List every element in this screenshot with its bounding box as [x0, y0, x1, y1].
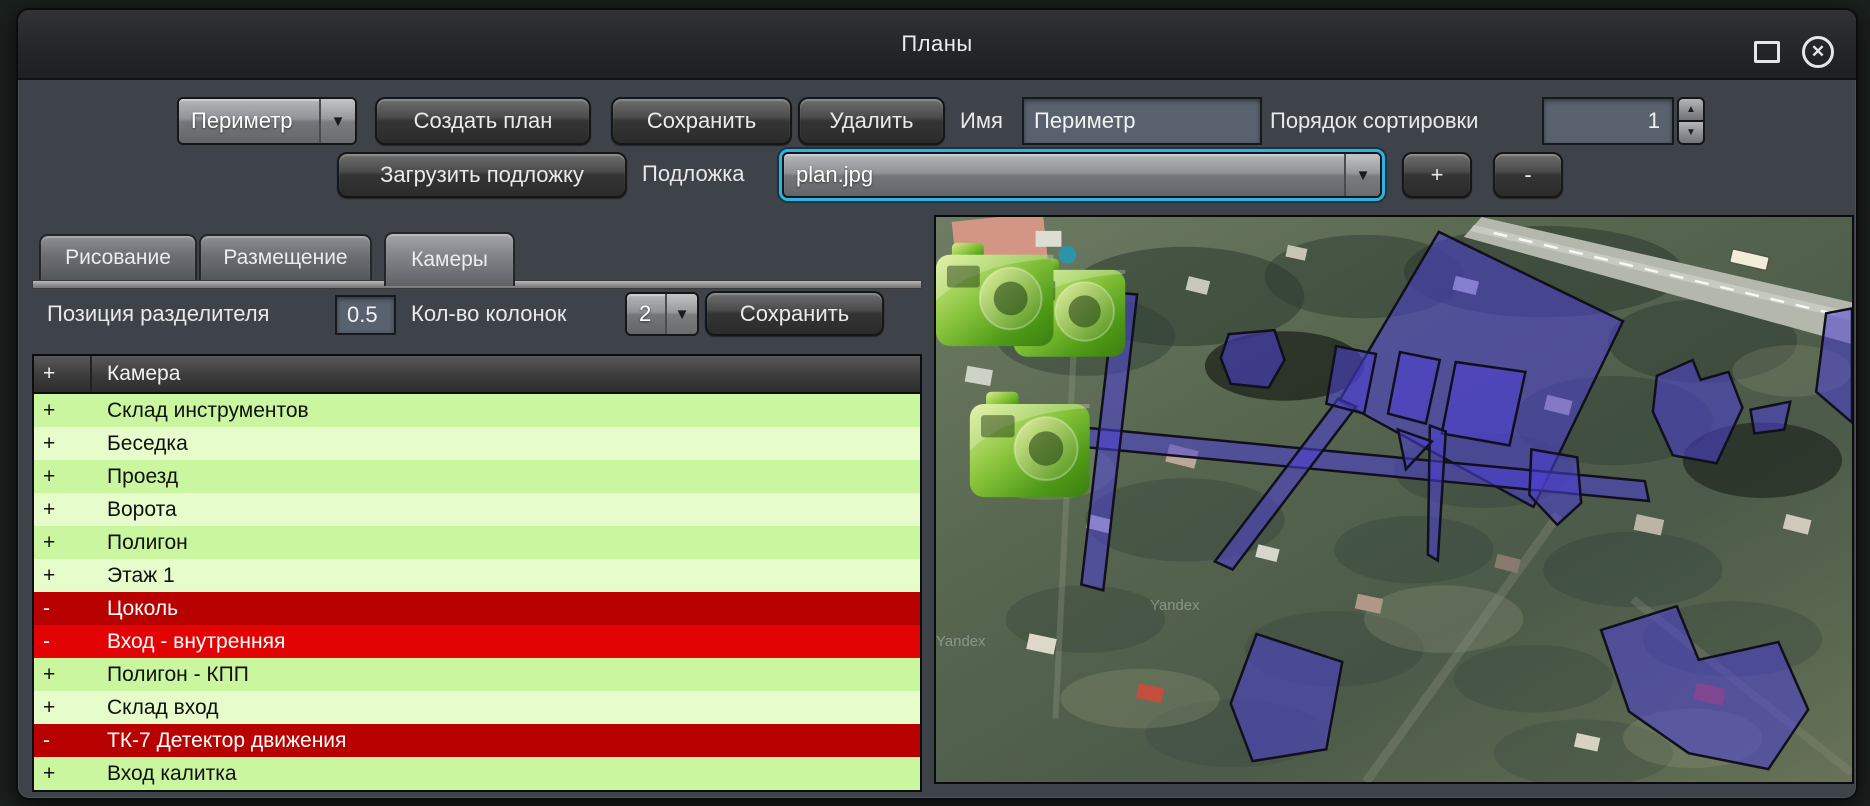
camera-row-name[interactable]: Склад инструментов	[92, 394, 920, 427]
camera-icon[interactable]	[936, 243, 1053, 346]
camera-row-mark[interactable]: +	[34, 691, 92, 724]
camera-row-mark[interactable]: +	[34, 493, 92, 526]
columns-count-label: Кол-во колонок	[411, 293, 566, 335]
columns-count-select[interactable]: 2 ▼	[625, 292, 699, 336]
camera-table-row[interactable]: +Склад инструментов	[34, 394, 920, 427]
remove-underlay-button[interactable]: -	[1493, 152, 1563, 198]
camera-row-mark[interactable]: -	[34, 625, 92, 658]
camera-row-mark[interactable]: -	[34, 724, 92, 757]
name-input[interactable]: Периметр	[1022, 97, 1262, 145]
camera-row-name[interactable]: Полигон - КПП	[92, 658, 920, 691]
save-plan-button[interactable]: Сохранить	[611, 97, 792, 145]
map-watermark: Yandex	[936, 634, 986, 650]
camera-row-name[interactable]: Беседка	[92, 427, 920, 460]
camera-row-mark[interactable]: +	[34, 526, 92, 559]
titlebar: Планы ✕	[18, 10, 1856, 80]
camera-row-name[interactable]: Склад вход	[92, 691, 920, 724]
delete-plan-button[interactable]: Удалить	[798, 97, 945, 145]
tab-drawing[interactable]: Рисование	[39, 234, 197, 280]
create-plan-button[interactable]: Создать план	[375, 97, 591, 145]
zone-polygon-area-pentagon[interactable]	[1529, 449, 1581, 524]
camera-table-header: + Камера	[34, 356, 920, 394]
camera-table-row[interactable]: -ТК-7 Детектор движения	[34, 724, 920, 757]
spin-down-icon[interactable]: ▼	[1677, 121, 1705, 145]
camera-row-name[interactable]: Цоколь	[92, 592, 920, 625]
camera-table-row[interactable]: +Проезд	[34, 460, 920, 493]
camera-row-mark[interactable]: +	[34, 757, 92, 790]
spin-up-icon[interactable]: ▲	[1677, 97, 1705, 121]
camera-table-row[interactable]: -Цоколь	[34, 592, 920, 625]
camera-row-name[interactable]: Вход калитка	[92, 757, 920, 790]
underlay-select[interactable]: plan.jpg ▼	[782, 152, 1382, 198]
sort-order-stepper[interactable]: 1 ▲ ▼	[1542, 97, 1705, 145]
camera-row-name[interactable]: Вход - внутренняя	[92, 625, 920, 658]
plans-window: Планы ✕ Периметр ▼ Создать план Сохранит…	[16, 8, 1858, 800]
camera-table-row[interactable]: -Вход - внутренняя	[34, 625, 920, 658]
column-header-camera[interactable]: Камера	[92, 356, 920, 392]
maximize-icon[interactable]	[1754, 41, 1780, 63]
plan-select-value: Периметр	[179, 108, 319, 134]
camera-row-name[interactable]: ТК-7 Детектор движения	[92, 724, 920, 757]
save-cameras-button[interactable]: Сохранить	[705, 291, 884, 336]
tab-placement[interactable]: Размещение	[199, 234, 372, 280]
plan-map[interactable]: YandexYandex	[934, 215, 1854, 784]
sort-order-label: Порядок сортировки	[1270, 97, 1478, 145]
camera-table: + Камера +Склад инструментов+Беседка+Про…	[32, 354, 922, 792]
add-underlay-button[interactable]: +	[1402, 152, 1472, 198]
zone-polygon-area-left[interactable]	[1221, 330, 1285, 388]
camera-row-mark[interactable]: -	[34, 592, 92, 625]
splitter-position-label: Позиция разделителя	[47, 293, 269, 335]
camera-row-mark[interactable]: +	[34, 460, 92, 493]
tab-cameras[interactable]: Камеры	[384, 232, 515, 286]
camera-table-body: +Склад инструментов+Беседка+Проезд+Ворот…	[34, 394, 920, 790]
camera-row-mark[interactable]: +	[34, 427, 92, 460]
chevron-down-icon[interactable]: ▼	[319, 99, 355, 143]
camera-table-row[interactable]: +Ворота	[34, 493, 920, 526]
camera-row-name[interactable]: Этаж 1	[92, 559, 920, 592]
chevron-down-icon[interactable]: ▼	[665, 294, 697, 334]
column-header-mark[interactable]: +	[34, 356, 92, 392]
camera-table-row[interactable]: +Полигон	[34, 526, 920, 559]
plan-map-canvas: YandexYandex	[936, 217, 1852, 782]
camera-table-row[interactable]: +Полигон - КПП	[34, 658, 920, 691]
columns-count-value: 2	[627, 301, 665, 327]
underlay-select-value: plan.jpg	[784, 162, 1344, 188]
camera-table-row[interactable]: +Беседка	[34, 427, 920, 460]
camera-icon[interactable]	[970, 392, 1090, 497]
camera-row-mark[interactable]: +	[34, 394, 92, 427]
camera-table-row[interactable]: +Склад вход	[34, 691, 920, 724]
camera-row-name[interactable]: Проезд	[92, 460, 920, 493]
zone-polygon-building-right-tail[interactable]	[1750, 402, 1790, 434]
underlay-label: Подложка	[642, 151, 745, 197]
load-underlay-button[interactable]: Загрузить подложку	[337, 152, 627, 198]
camera-row-mark[interactable]: +	[34, 559, 92, 592]
camera-row-name[interactable]: Ворота	[92, 493, 920, 526]
window-title: Планы	[901, 31, 972, 57]
zone-polygon-area-small-3[interactable]	[1442, 362, 1526, 445]
sort-order-value[interactable]: 1	[1542, 97, 1674, 145]
camera-row-name[interactable]: Полигон	[92, 526, 920, 559]
map-watermark: Yandex	[1150, 598, 1200, 614]
close-icon[interactable]: ✕	[1802, 36, 1834, 68]
camera-table-row[interactable]: +Вход калитка	[34, 757, 920, 790]
name-label: Имя	[960, 97, 1003, 145]
camera-row-mark[interactable]: +	[34, 658, 92, 691]
splitter-position-input[interactable]: 0.5	[335, 295, 396, 335]
camera-table-row[interactable]: +Этаж 1	[34, 559, 920, 592]
plan-select[interactable]: Периметр ▼	[177, 97, 357, 145]
chevron-down-icon[interactable]: ▼	[1344, 154, 1380, 196]
